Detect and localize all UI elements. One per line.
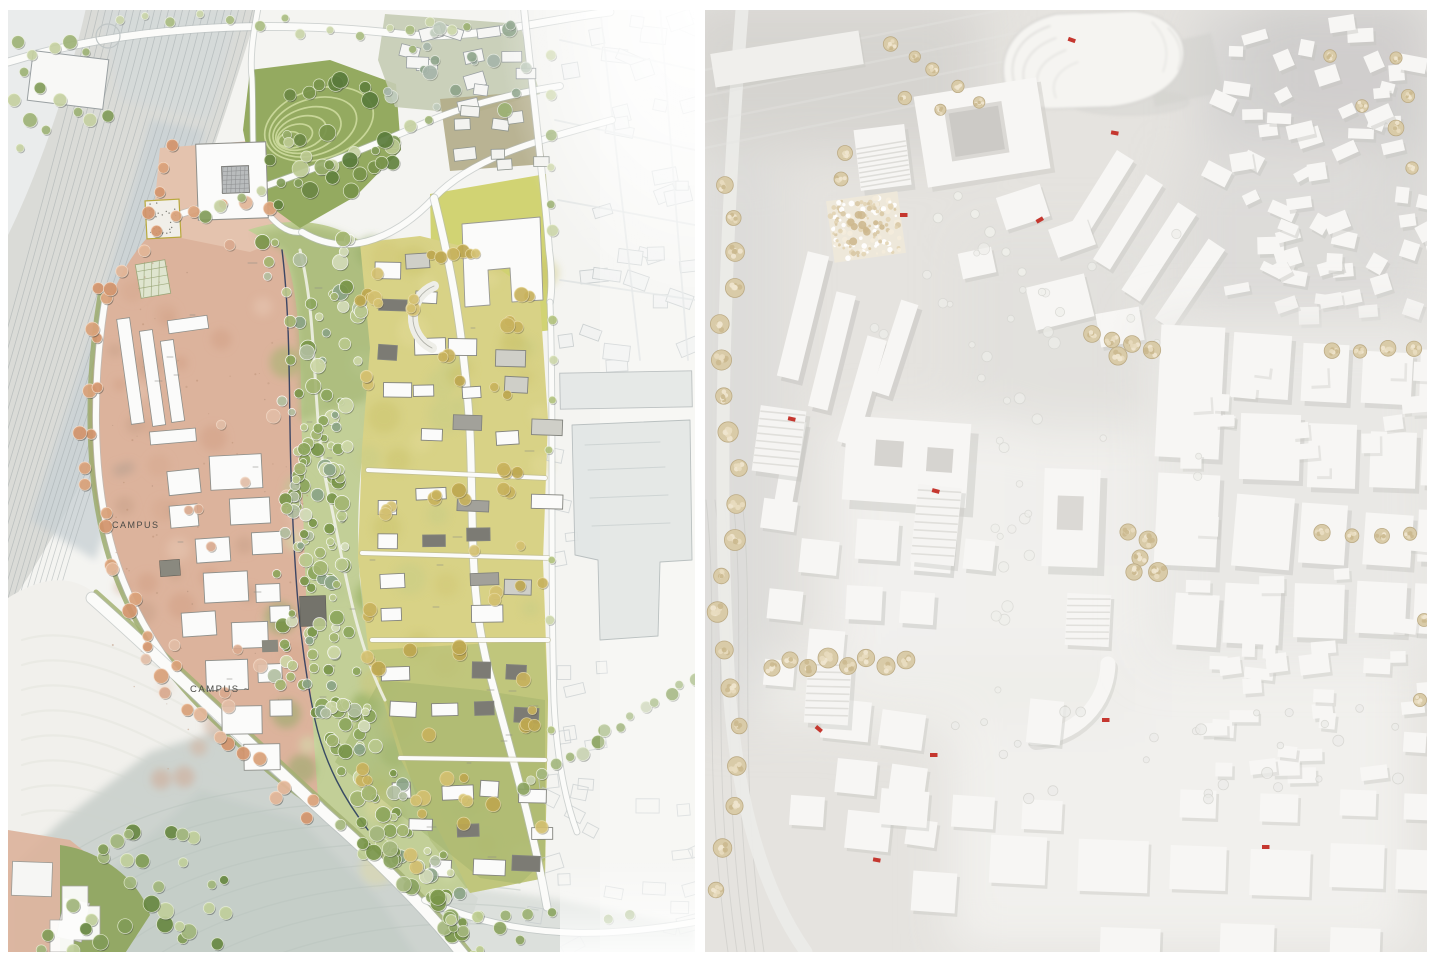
svg-text:CAMPUS ~: CAMPUS ~ [190, 684, 251, 695]
svg-text:CAMPUS: CAMPUS [112, 520, 160, 530]
